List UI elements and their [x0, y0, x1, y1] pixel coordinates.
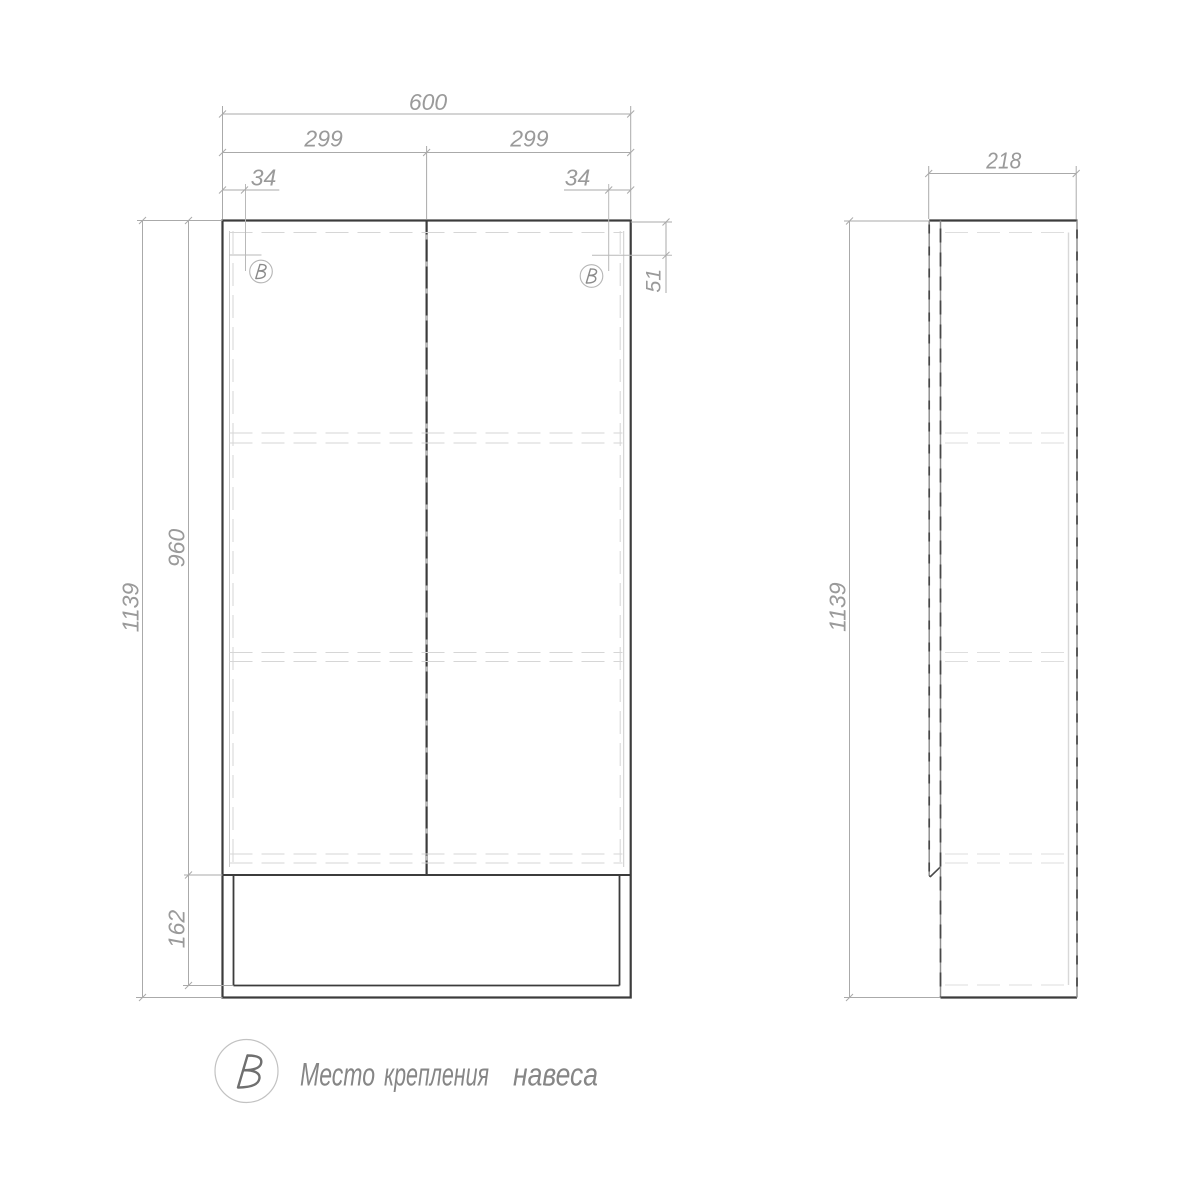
- svg-text:1139: 1139: [825, 582, 851, 632]
- svg-text:34: 34: [565, 165, 591, 191]
- svg-text:299: 299: [509, 126, 549, 152]
- svg-text:299: 299: [303, 126, 343, 152]
- svg-text:162: 162: [164, 910, 190, 949]
- svg-text:навеса: навеса: [513, 1057, 598, 1093]
- svg-text:51: 51: [642, 269, 666, 293]
- svg-text:600: 600: [409, 89, 448, 115]
- svg-text:34: 34: [251, 165, 277, 191]
- svg-text:218: 218: [985, 148, 1021, 174]
- svg-text:960: 960: [164, 529, 190, 568]
- svg-text:крепления: крепления: [384, 1057, 489, 1093]
- svg-text:Место: Место: [300, 1057, 375, 1093]
- svg-text:1139: 1139: [118, 583, 144, 633]
